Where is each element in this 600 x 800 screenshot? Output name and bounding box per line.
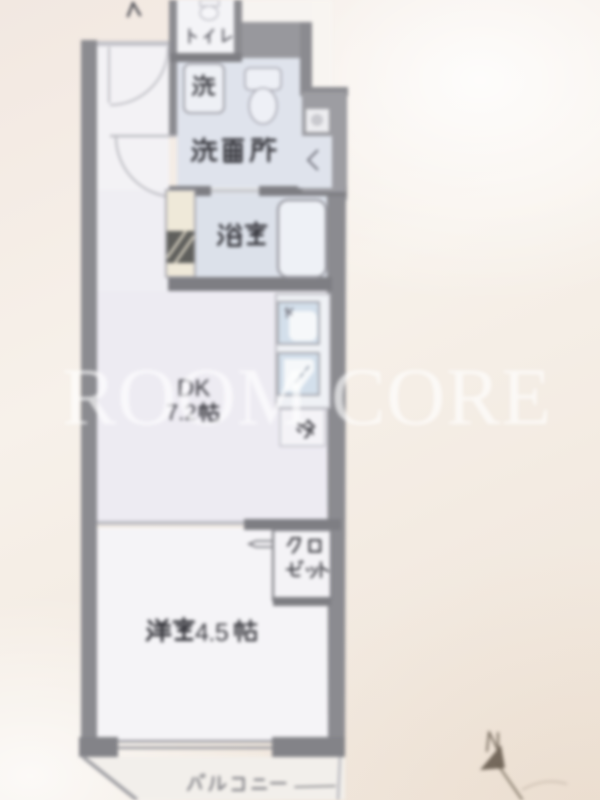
svg-text:ROOM CORE: ROOM CORE (62, 351, 552, 442)
svg-text:4.5: 4.5 (195, 619, 228, 647)
